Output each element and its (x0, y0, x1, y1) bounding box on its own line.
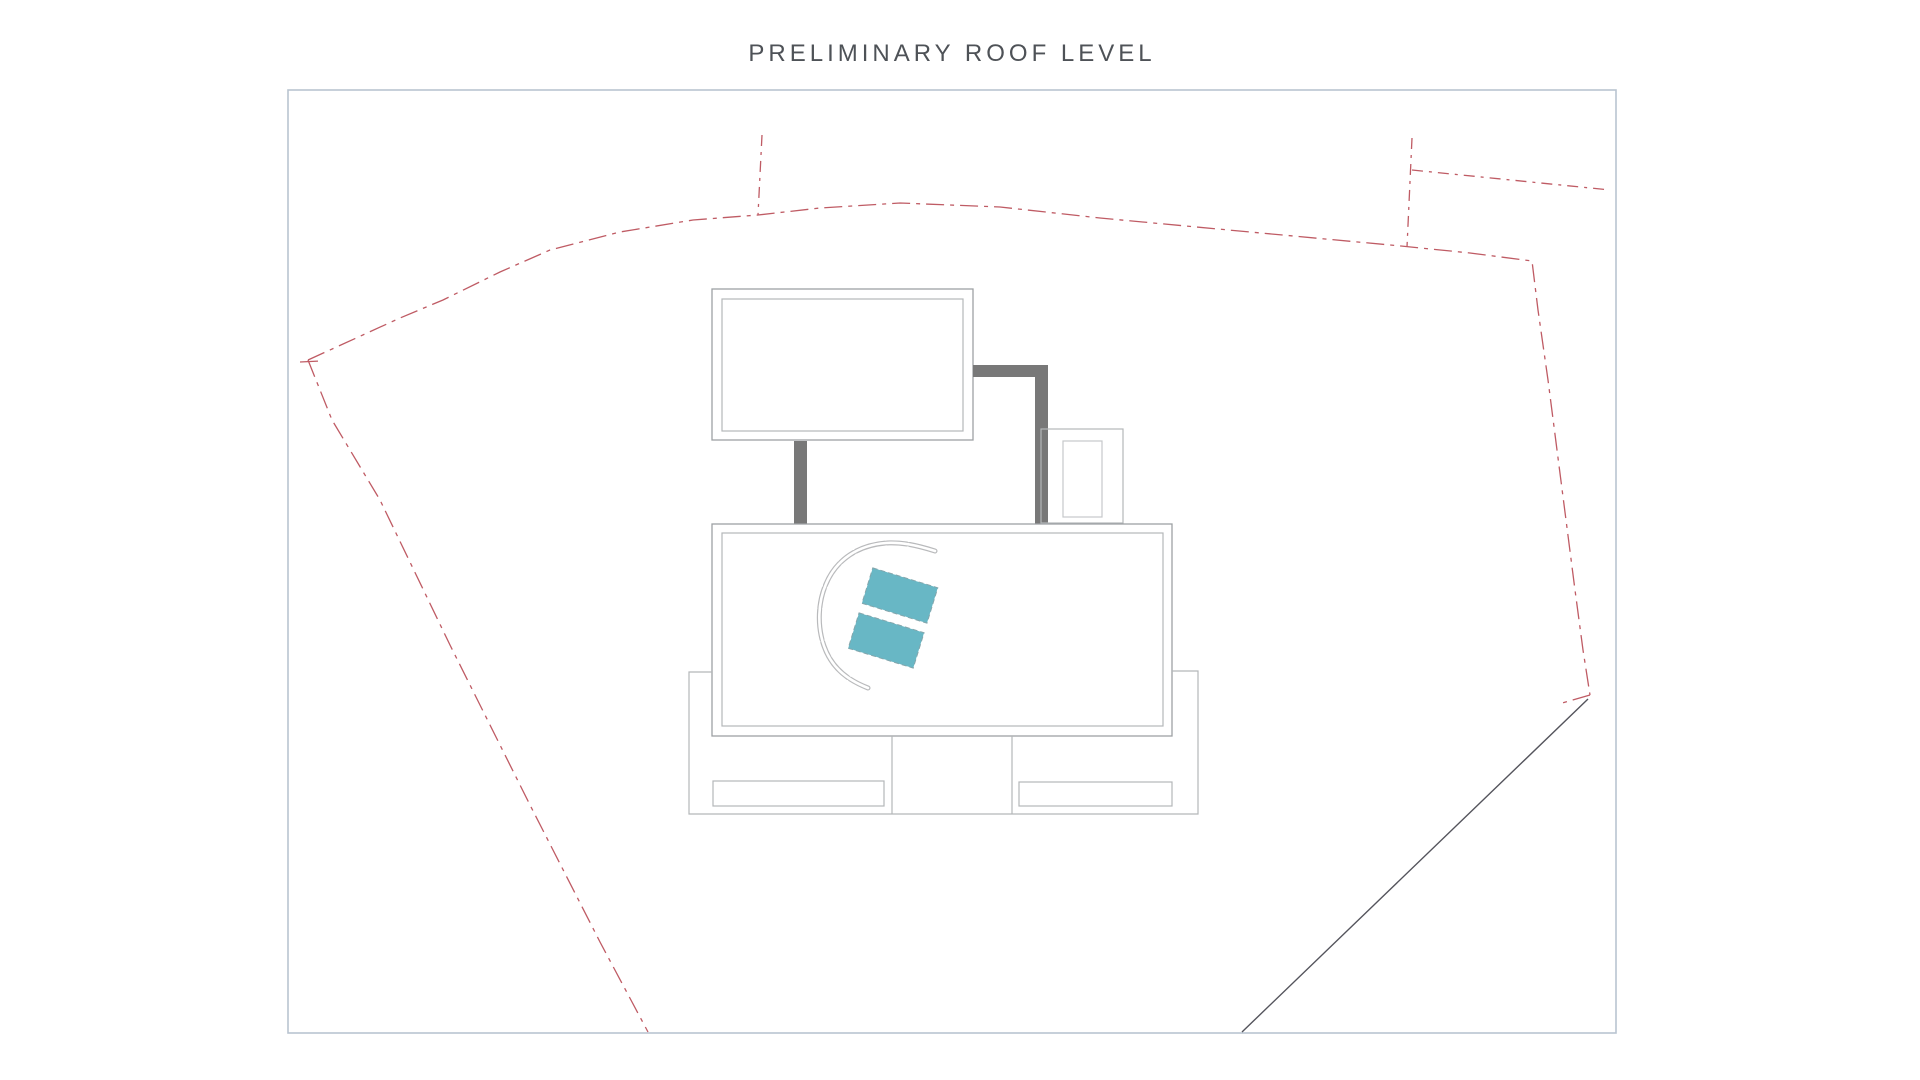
boundary-north-stub-line (758, 135, 762, 215)
boundary-west-line (308, 360, 648, 1032)
terrace-planter-west (713, 781, 884, 806)
roof-plan-canvas (0, 0, 1920, 1080)
drawing-sheet: PRELIMINARY ROOF LEVEL (0, 0, 1920, 1080)
boundary-northeast-dash-line (1412, 170, 1610, 190)
main-roof-parapet-inner-edge (722, 533, 1163, 726)
terrace-outline (689, 671, 1198, 814)
terrace-center-bay-walls (892, 736, 1012, 814)
stair-shaft-structure (1041, 429, 1123, 523)
connecting-walls (794, 365, 1048, 524)
lower-terrace-band (689, 671, 1198, 814)
skylight-panel-upper (862, 568, 938, 623)
skylight-panel-lower (848, 613, 924, 668)
site-frame-border (288, 90, 1616, 1033)
stair-shaft-opening (1063, 441, 1102, 517)
survey-contour-line (1242, 699, 1588, 1032)
boundary-northeast-stub-line (1407, 138, 1412, 247)
boundary-reference-segments (758, 135, 1610, 247)
upper-roof-parapet-inner-edge (722, 299, 963, 431)
building-roof-plan (689, 289, 1198, 814)
main-roof-volume (712, 524, 1172, 736)
boundary-north-and-east-line (308, 203, 1590, 695)
terrace-planter-east (1019, 782, 1172, 806)
skylight (848, 568, 938, 668)
upper-roof-outer-edge (712, 289, 973, 440)
stair-shaft-outer-edge (1041, 429, 1123, 523)
boundary-west-vertex-tick (300, 361, 320, 362)
property-boundary (300, 203, 1590, 1032)
wall-west-link (794, 441, 807, 524)
upper-roof-volume (712, 289, 973, 440)
main-roof-outer-edge (712, 524, 1172, 736)
